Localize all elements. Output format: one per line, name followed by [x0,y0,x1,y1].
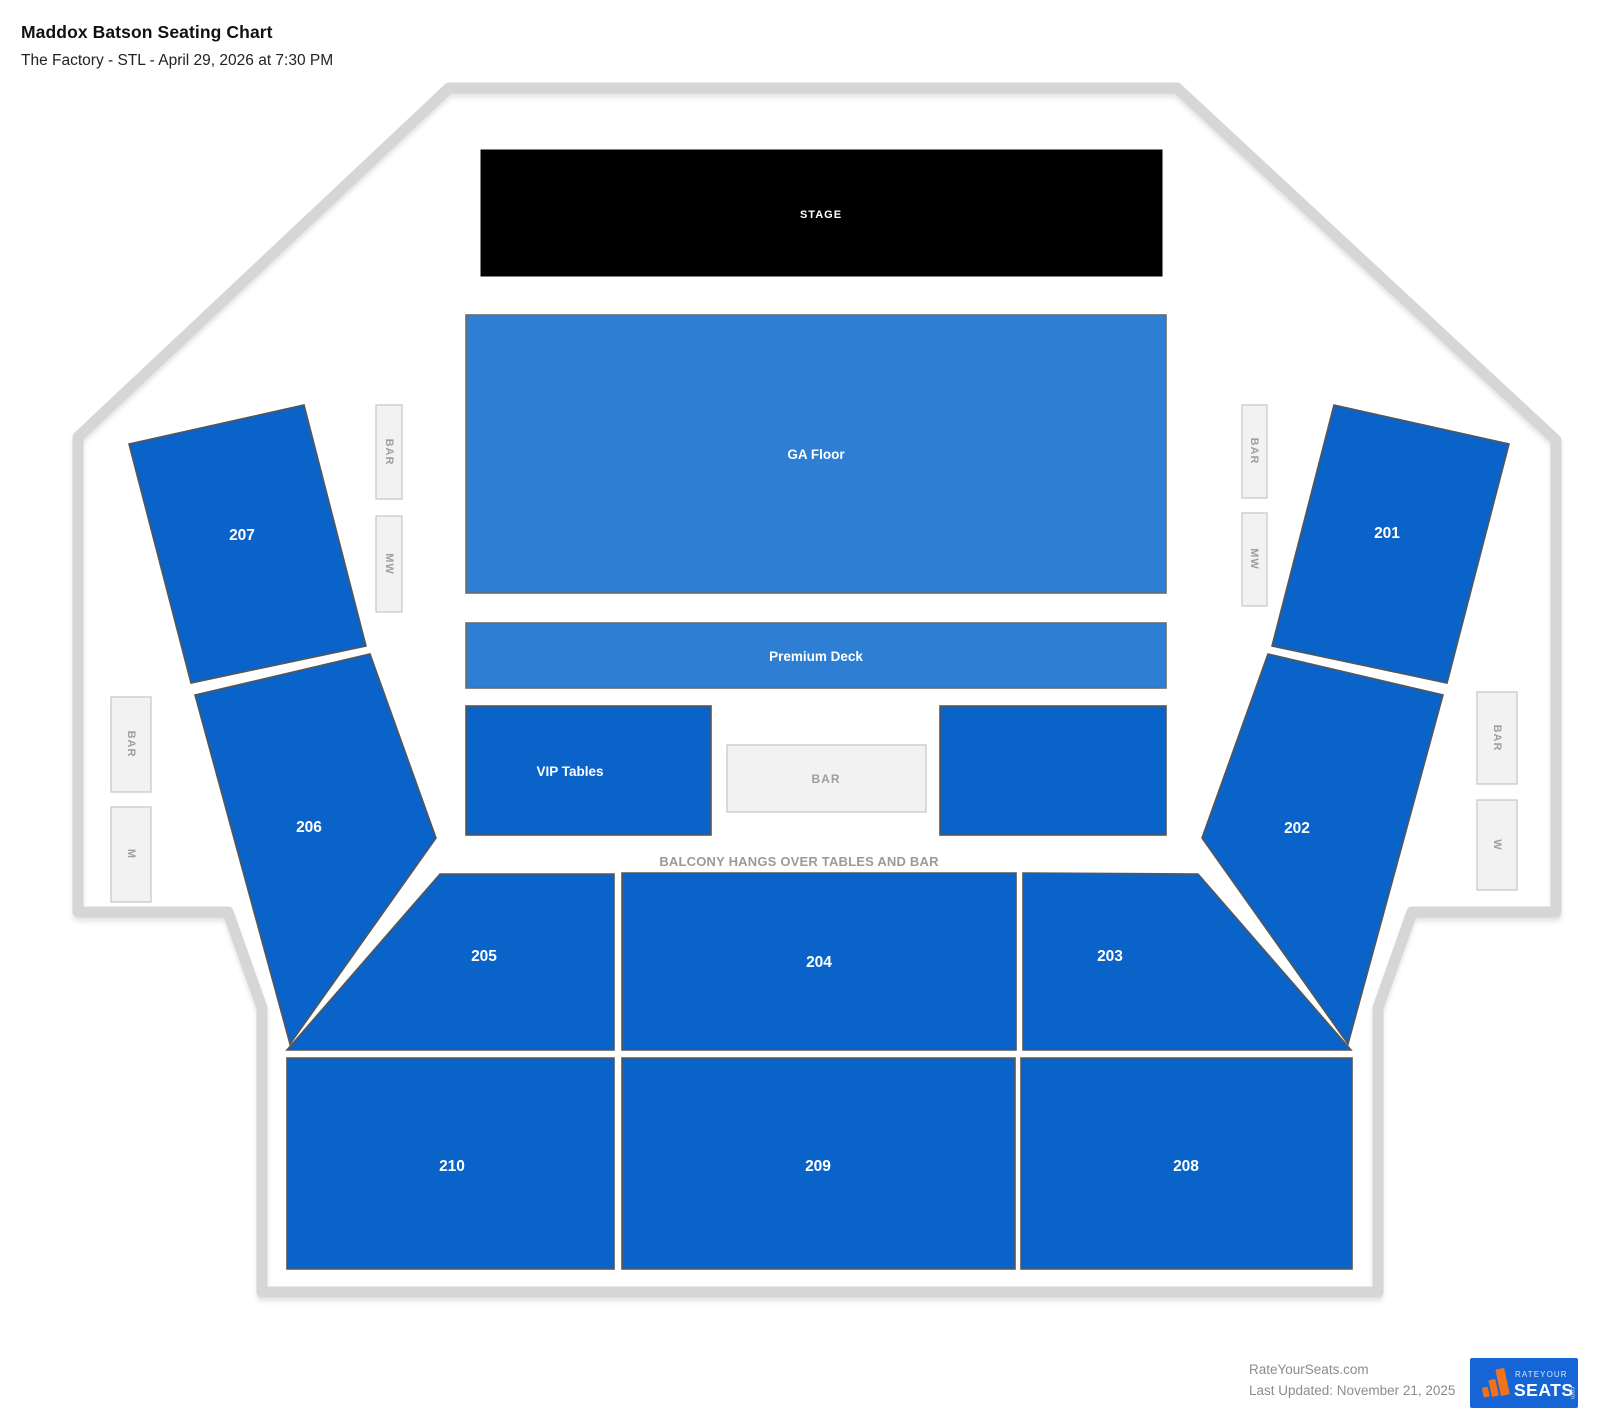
restroom-m-left-label: M [125,849,137,859]
restroom-mw-right-label: MW [1248,548,1260,570]
section-vip-tables-right[interactable] [940,706,1166,835]
premium-deck-label: Premium Deck [769,649,863,664]
footer-updated: Last Updated: November 21, 2025 [1249,1380,1455,1401]
section-201-label: 201 [1374,525,1400,542]
balcony-note: BALCONY HANGS OVER TABLES AND BAR [659,854,939,869]
vip-tables-label: VIP Tables [536,764,603,779]
section-201[interactable] [1272,405,1509,683]
restroom-w-right-label: W [1491,839,1503,850]
section-206-label: 206 [296,819,322,836]
logo-text-seats: SEATS [1514,1380,1574,1400]
stage-label: STAGE [800,209,842,221]
section-203-label: 203 [1097,948,1123,965]
section-208-label: 208 [1173,1158,1199,1175]
section-205-label: 205 [471,948,497,965]
logo-text-rateyour: RATEYOUR [1515,1370,1568,1379]
footer-credits: RateYourSeats.com Last Updated: November… [1249,1359,1455,1401]
bar-box-right-inner-label: BAR [1248,438,1260,465]
section-204-label: 204 [806,954,832,971]
ga-floor-label: GA Floor [787,447,845,462]
bar-box-left-inner-label: BAR [383,439,395,466]
seating-map: STAGE GA Floor Premium Deck VIP Tables B… [0,0,1600,1419]
restroom-mw-left-label: MW [383,553,395,575]
section-207[interactable] [129,405,366,683]
center-bar-label: BAR [812,772,841,786]
bar-box-right-outer-label: BAR [1491,725,1503,752]
section-209-label: 209 [805,1158,831,1175]
rateyourseats-logo[interactable]: RATEYOUR SEATS .com [1470,1358,1578,1408]
bar-box-left-outer-label: BAR [125,731,137,758]
footer-site: RateYourSeats.com [1249,1359,1455,1380]
section-210-label: 210 [439,1158,465,1175]
section-202-label: 202 [1284,820,1310,837]
section-207-label: 207 [229,527,255,544]
logo-text-dotcom: .com [1569,1385,1576,1399]
